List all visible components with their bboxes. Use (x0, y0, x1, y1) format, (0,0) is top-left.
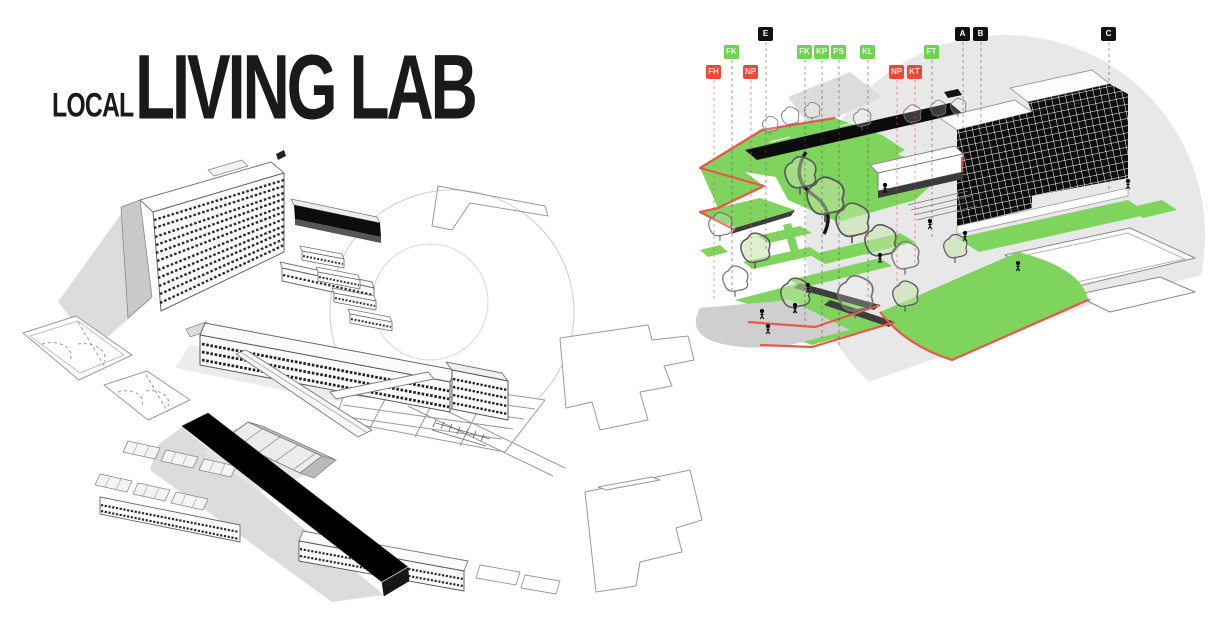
poster-title: LOCAL LIVING LAB (52, 48, 475, 129)
site-diagram-color (696, 35, 1213, 617)
marker-fk-1: FK (724, 45, 739, 59)
marker-ps: PS (831, 45, 846, 59)
marker-kt: KT (907, 65, 922, 79)
site-arc-inner (372, 244, 488, 360)
marker-kl: KL (860, 45, 875, 59)
marker-fk-2: FK (797, 45, 812, 59)
campus-axonometric-monochrome (23, 150, 702, 602)
poster-canvas: LOCAL LIVING LAB FH FK NP E FK KP PS KL … (0, 0, 1213, 617)
marker-c: C (1101, 27, 1116, 41)
title-prefix: LOCAL (52, 87, 133, 122)
tall-slab-building (121, 150, 286, 318)
marker-e: E (758, 27, 773, 41)
title-main: LIVING LAB (135, 48, 475, 129)
marker-a: A (955, 27, 970, 41)
marker-np-2: NP (889, 65, 904, 79)
marker-b: B (973, 27, 988, 41)
marker-fh: FH (706, 65, 721, 79)
marker-kp: KP (814, 45, 829, 59)
rooftop-black-bar (291, 199, 381, 243)
marker-ft: FT (924, 45, 939, 59)
marker-np-1: NP (743, 65, 758, 79)
